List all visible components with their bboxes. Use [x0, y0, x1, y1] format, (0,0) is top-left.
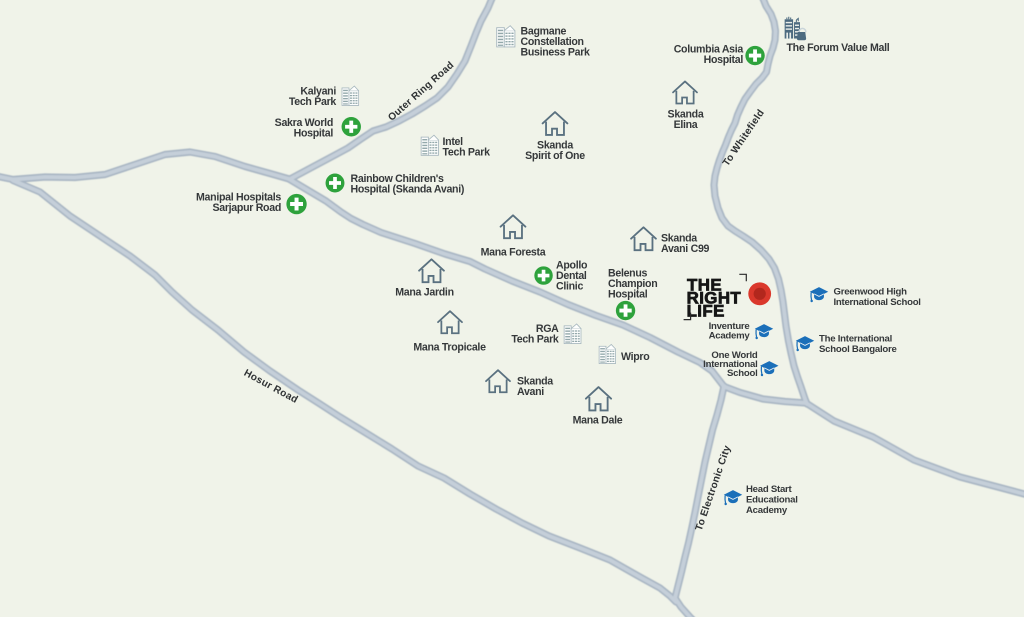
svg-text:LIFE: LIFE — [687, 301, 725, 320]
svg-text:Wipro: Wipro — [621, 351, 650, 363]
svg-text:InventureAcademy: InventureAcademy — [709, 321, 751, 341]
svg-text:Mana Jardin: Mana Jardin — [395, 287, 454, 299]
svg-text:The Forum Value Mall: The Forum Value Mall — [787, 42, 890, 54]
svg-text:Mana Foresta: Mana Foresta — [481, 246, 546, 258]
svg-text:The InternationalSchool Bangal: The InternationalSchool Bangalore — [819, 334, 897, 355]
svg-text:Mana Dale: Mana Dale — [573, 415, 623, 427]
svg-text:Mana Tropicale: Mana Tropicale — [413, 342, 486, 354]
